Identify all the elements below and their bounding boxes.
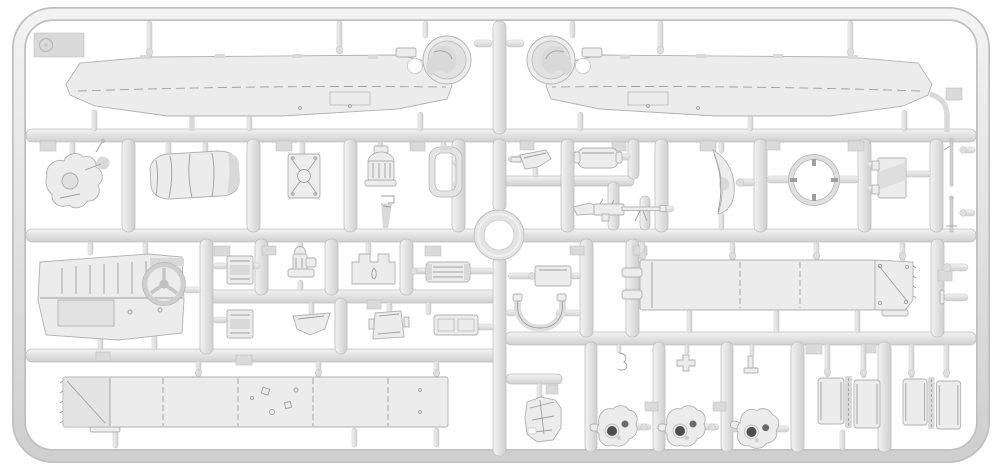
hull-panel-left (66, 36, 471, 116)
stowage-box-upper (227, 256, 253, 284)
center-ring (474, 210, 524, 260)
axle-hub-3 (727, 403, 782, 452)
crumpled-seat (525, 397, 561, 442)
sprue-svg (0, 0, 1000, 474)
small-plate-right (535, 266, 571, 286)
gun-shield (713, 150, 734, 214)
hinged-hood-2 (903, 377, 961, 429)
air-filter (365, 146, 396, 186)
corner-tab (34, 33, 84, 57)
cross-fitting (677, 355, 695, 371)
funnel (511, 150, 551, 169)
sprue-photo (0, 0, 1000, 474)
hull-panel-right (527, 36, 932, 116)
antenna-rod-2 (946, 196, 957, 233)
antenna-rod-1 (944, 138, 954, 187)
ribbed-grille-upper (426, 262, 470, 282)
bed-side-panel-bottom (60, 377, 448, 432)
bed-side-panel-right (622, 260, 916, 316)
hook-fitting (618, 353, 627, 370)
notched-seat-plate (352, 254, 395, 284)
hinged-hood-1 (818, 376, 880, 428)
tarp-roll (150, 151, 240, 199)
hatch-frame-ring (429, 146, 462, 197)
transfer-case-box (872, 158, 906, 198)
engine-pump (288, 247, 316, 278)
machine-gun (573, 199, 666, 221)
stowage-box-lower (227, 310, 253, 338)
tee-bracket (744, 356, 758, 373)
firewall-panel (38, 254, 186, 340)
strap-bracket (381, 196, 394, 228)
ribbed-grille-lower (434, 315, 478, 335)
fuel-tank-box (574, 148, 622, 168)
turret-ring (789, 155, 840, 206)
mount-plate (369, 311, 409, 339)
x-braced-plate (288, 154, 320, 198)
tray (293, 313, 330, 335)
